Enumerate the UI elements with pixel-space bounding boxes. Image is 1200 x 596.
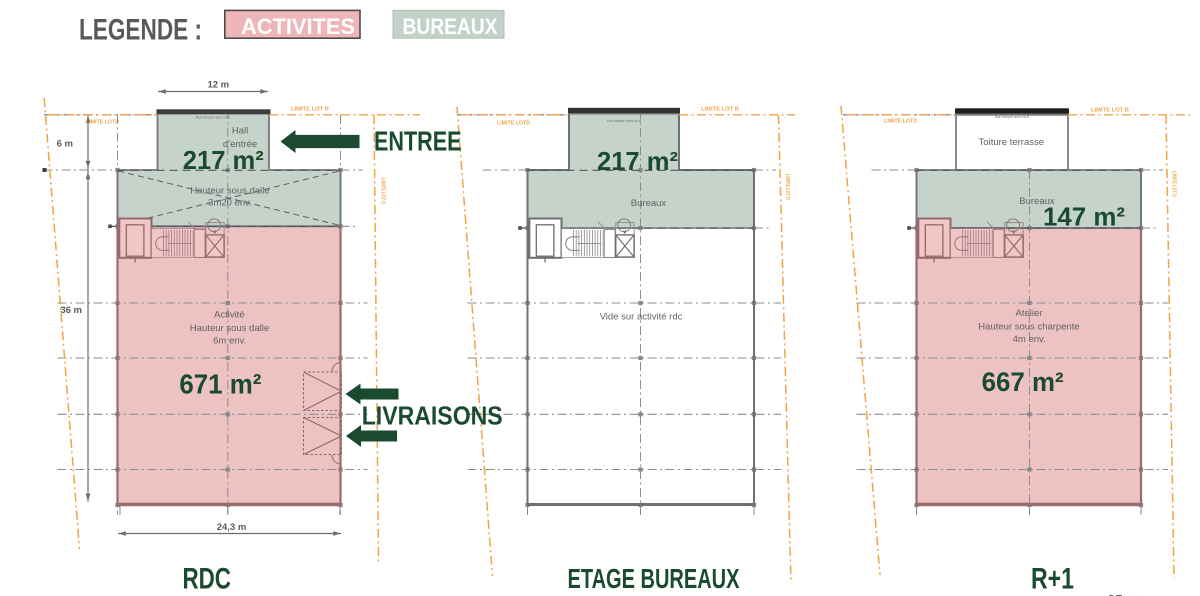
svg-text:6m env.: 6m env. <box>213 336 246 347</box>
svg-text:Mur mitoyen avec lot B: Mur mitoyen avec lot B <box>995 115 1030 119</box>
svg-text:LIMITE LOT B: LIMITE LOT B <box>1091 108 1129 114</box>
svg-text:217 m²: 217 m² <box>597 146 678 176</box>
svg-text:667 m²: 667 m² <box>982 367 1064 397</box>
svg-text:671 m²: 671 m² <box>179 369 261 400</box>
svg-text:Atelier: Atelier <box>1016 308 1043 319</box>
svg-text:Mur mitoyen avec lot B: Mur mitoyen avec lot B <box>196 115 231 119</box>
svg-text:Hauteur sous charpente: Hauteur sous charpente <box>978 322 1079 333</box>
svg-text:LIMITE LOTD: LIMITE LOTD <box>884 119 917 125</box>
svg-text:12 m: 12 m <box>207 79 229 90</box>
svg-text:36 m: 36 m <box>60 305 82 316</box>
svg-text:217 m²: 217 m² <box>183 145 264 175</box>
svg-text:LIMITE LOTD: LIMITE LOTD <box>86 120 119 126</box>
svg-text:24,3 m: 24,3 m <box>217 522 247 533</box>
svg-text:Bureaux: Bureaux <box>631 198 667 209</box>
svg-text:LIMITE LOT B: LIMITE LOT B <box>701 107 739 113</box>
svg-text:25: 25 <box>1107 592 1123 596</box>
svg-text:ETAGE BUREAUX: ETAGE BUREAUX <box>568 563 740 594</box>
svg-text:ACTIVITES: ACTIVITES <box>241 14 355 39</box>
svg-text:LEGENDE :: LEGENDE : <box>79 14 202 47</box>
svg-text:LIMITE LOT D: LIMITE LOT D <box>380 178 386 204</box>
svg-text:BUREAUX: BUREAUX <box>403 14 498 39</box>
svg-text:LIMITE LOT B: LIMITE LOT B <box>291 107 329 113</box>
svg-text:4m env.: 4m env. <box>1013 334 1046 345</box>
svg-text:Hauteur sous dalle: Hauteur sous dalle <box>190 186 269 197</box>
svg-text:RDC: RDC <box>182 563 231 596</box>
svg-text:LIMITE LOT D: LIMITE LOT D <box>784 174 790 200</box>
svg-text:LIMITE LOT D: LIMITE LOT D <box>1171 171 1177 197</box>
svg-text:LIVRAISONS: LIVRAISONS <box>362 400 503 430</box>
svg-text:LIMITE LOTD: LIMITE LOTD <box>497 121 530 127</box>
svg-text:Hall: Hall <box>232 126 248 137</box>
svg-text:ENTREE: ENTREE <box>374 125 462 156</box>
svg-text:Toiture terrasse: Toiture terrasse <box>979 137 1044 148</box>
svg-text:Activité: Activité <box>214 310 245 321</box>
svg-text:Hauteur sous dalle: Hauteur sous dalle <box>190 323 269 334</box>
svg-text:3m20 env.: 3m20 env. <box>208 198 252 209</box>
svg-text:R+1: R+1 <box>1031 563 1074 596</box>
svg-text:6 m: 6 m <box>57 139 73 150</box>
svg-text:147 m²: 147 m² <box>1043 201 1125 231</box>
svg-text:Mur mitoyen avec lot B: Mur mitoyen avec lot B <box>607 119 642 123</box>
svg-text:Vide sur activité rdc: Vide sur activité rdc <box>600 312 683 323</box>
